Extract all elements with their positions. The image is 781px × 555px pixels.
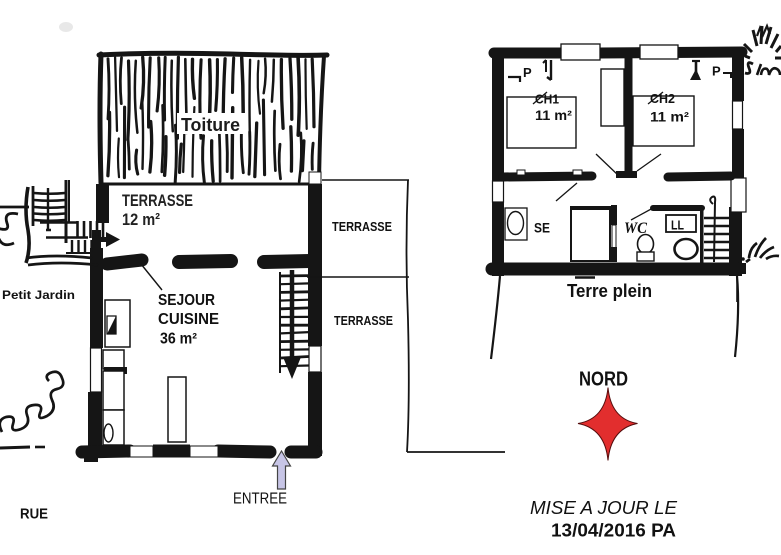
svg-text:13/04/2016 PA: 13/04/2016 PA bbox=[551, 520, 676, 541]
svg-text:11 m²: 11 m² bbox=[535, 107, 572, 123]
svg-text:12 m²: 12 m² bbox=[122, 211, 160, 229]
svg-text:RUE: RUE bbox=[20, 506, 48, 523]
svg-text:LL: LL bbox=[671, 218, 684, 233]
svg-text:Terre plein: Terre plein bbox=[567, 281, 652, 301]
svg-text:P: P bbox=[712, 64, 721, 79]
svg-text:NORD: NORD bbox=[579, 368, 628, 391]
svg-text:MISE A JOUR LE: MISE A JOUR LE bbox=[530, 498, 678, 518]
svg-text:SE: SE bbox=[534, 221, 550, 236]
svg-text:Petit Jardin: Petit Jardin bbox=[2, 288, 75, 302]
svg-text:TERRASSE: TERRASSE bbox=[334, 313, 393, 328]
svg-text:SEJOUR: SEJOUR bbox=[158, 292, 215, 309]
svg-text:TERRASSE: TERRASSE bbox=[122, 192, 193, 210]
svg-text:11 m²: 11 m² bbox=[650, 109, 689, 125]
svg-text:Toiture: Toiture bbox=[181, 115, 240, 135]
svg-text:TERRASSE: TERRASSE bbox=[332, 219, 392, 234]
svg-text:ENTREE: ENTREE bbox=[233, 491, 287, 508]
svg-text:CUISINE: CUISINE bbox=[158, 311, 219, 328]
svg-text:36 m²: 36 m² bbox=[160, 331, 197, 348]
svg-text:P: P bbox=[523, 65, 532, 80]
svg-text:CH2: CH2 bbox=[650, 91, 675, 106]
